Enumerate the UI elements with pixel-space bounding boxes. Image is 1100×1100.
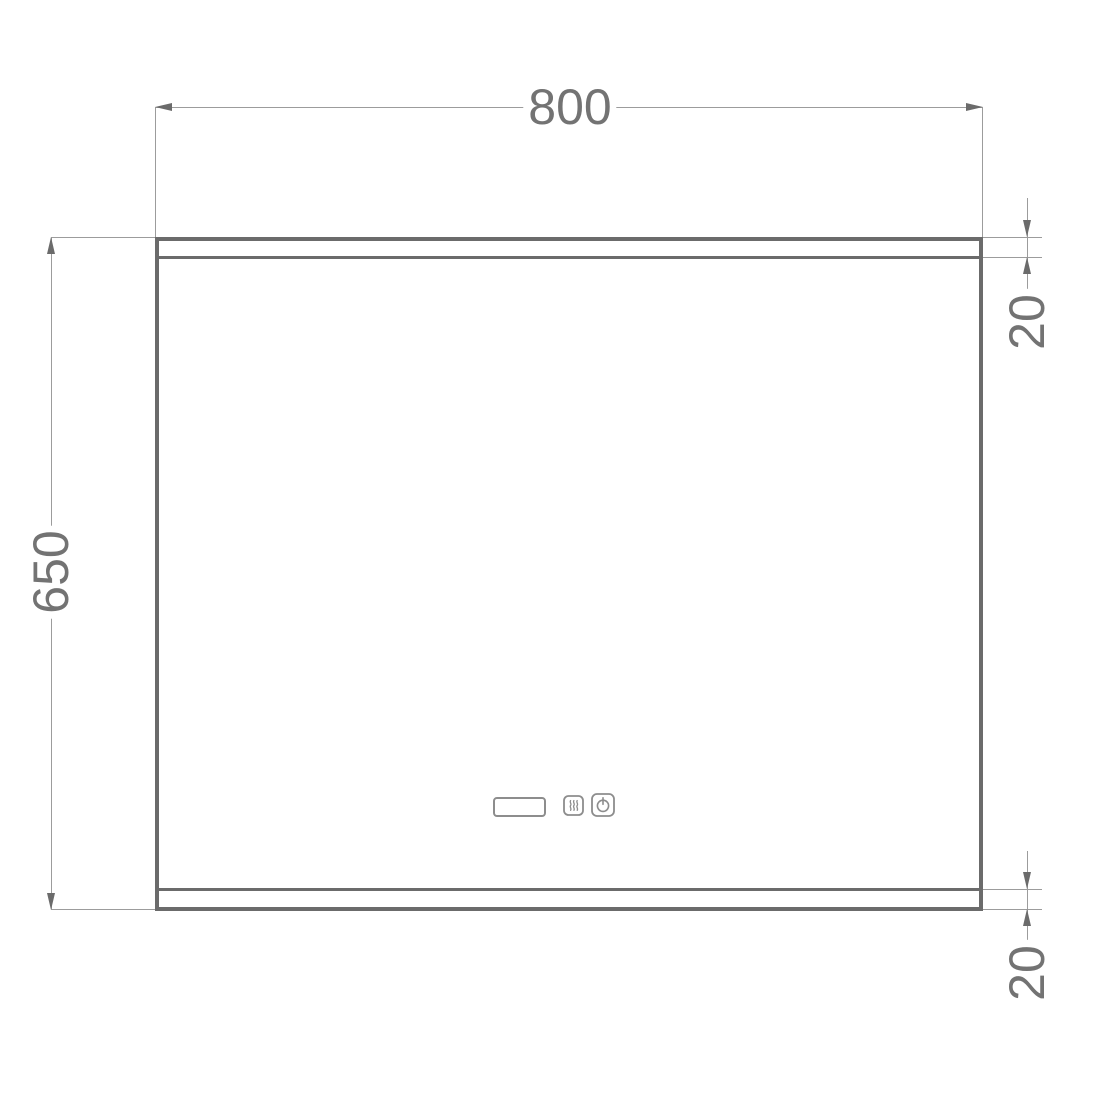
arrow-up-icon: [1023, 257, 1031, 274]
power-icon: [597, 798, 608, 812]
arrow-up-icon: [47, 237, 55, 254]
top-strip-dimension-line: [1027, 198, 1028, 298]
arrow-down-icon: [47, 893, 55, 910]
arrow-right-icon: [966, 103, 983, 111]
bottom-strip-dimension-line: [1027, 851, 1028, 948]
defog-icon: [570, 801, 577, 811]
power-button: [591, 793, 615, 817]
bottom-led-strip-line: [159, 888, 979, 891]
top-strip-dimension-label: 20: [1001, 289, 1054, 355]
top-strip-extension-line-upper: [983, 237, 1042, 238]
mirror-dimension-drawing: 800 650 20 20: [0, 0, 1100, 1100]
arrow-up-icon: [1023, 909, 1031, 926]
arrow-left-icon: [155, 103, 172, 111]
height-dimension-label: 650: [25, 525, 78, 618]
top-led-strip-line: [159, 256, 979, 259]
defog-button: [563, 795, 584, 816]
width-dimension-label: 800: [523, 81, 616, 134]
display-window: [493, 797, 546, 817]
bottom-strip-extension-line-lower: [983, 909, 1042, 910]
bottom-strip-dimension-label: 20: [1001, 940, 1054, 1006]
bottom-strip-extension-line-upper: [983, 889, 1042, 890]
width-extension-line-left: [155, 107, 156, 237]
top-strip-extension-line-lower: [983, 257, 1042, 258]
arrow-down-icon: [1023, 220, 1031, 237]
width-extension-line-right: [982, 107, 983, 237]
height-extension-line-bottom: [51, 909, 155, 910]
arrow-down-icon: [1023, 872, 1031, 889]
height-extension-line-top: [51, 237, 155, 238]
